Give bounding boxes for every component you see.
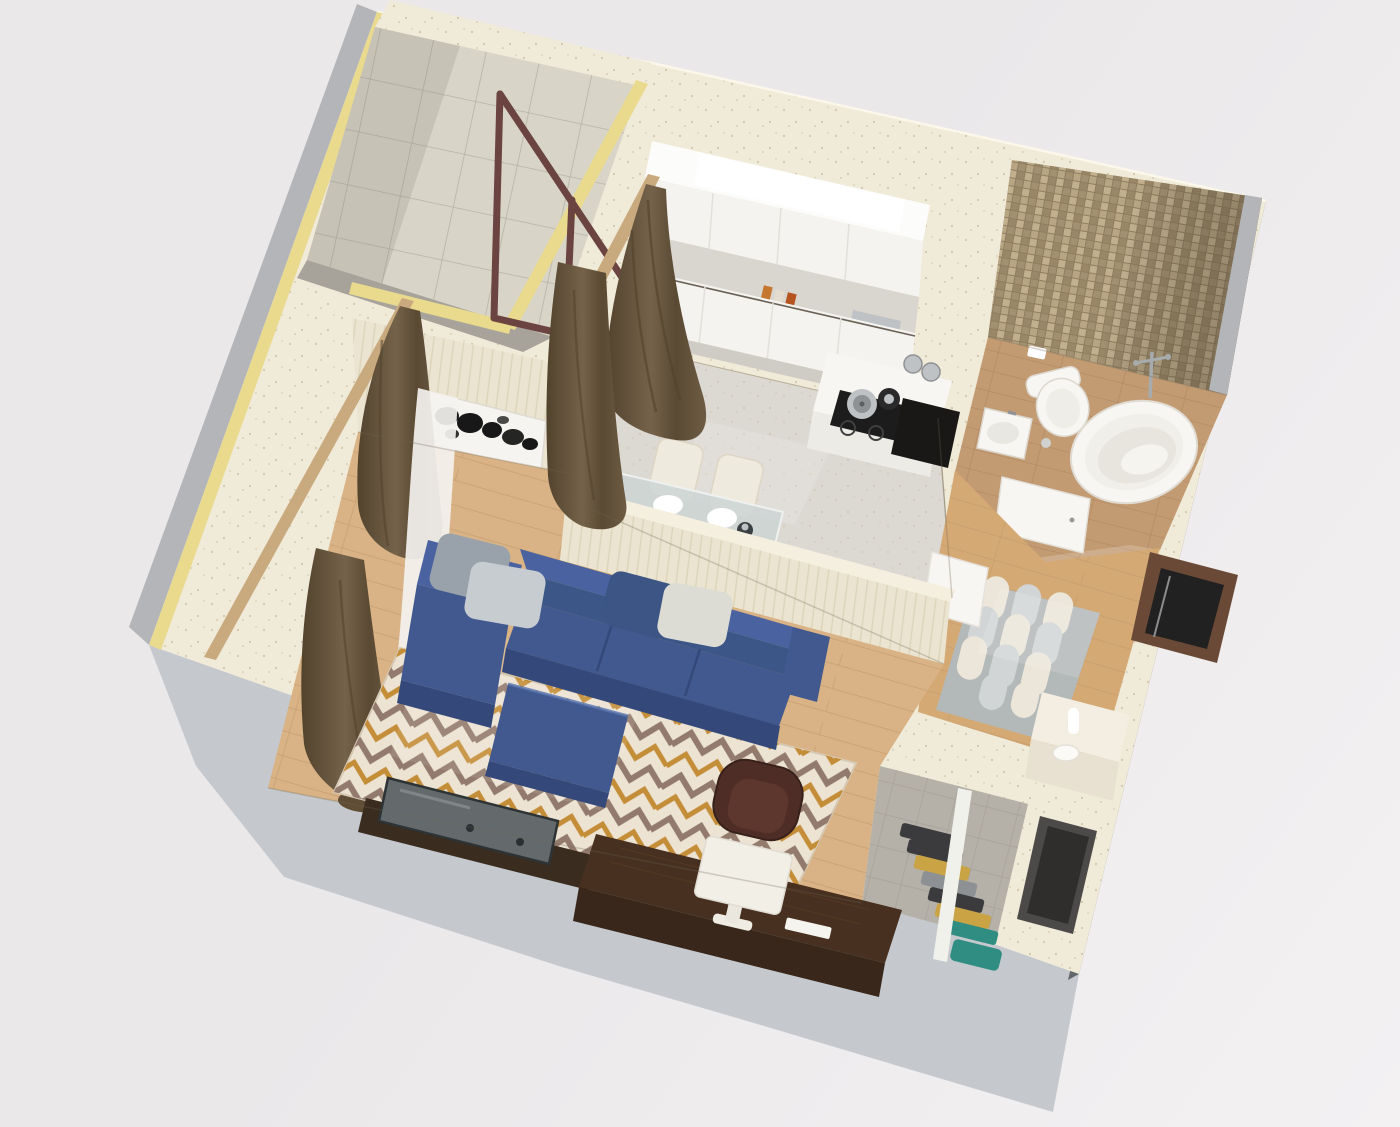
glass-jar <box>922 363 940 381</box>
bowl <box>1053 745 1079 761</box>
apartment-render: 3D isometric cutaway floor plan of a one… <box>0 0 1400 1127</box>
glass-jar <box>904 355 922 373</box>
vase <box>1068 708 1079 734</box>
floorplan-svg <box>0 0 1400 1127</box>
basin-faucet <box>1008 412 1016 414</box>
door-handle <box>1070 518 1075 523</box>
bath-tumbler <box>1041 438 1051 448</box>
